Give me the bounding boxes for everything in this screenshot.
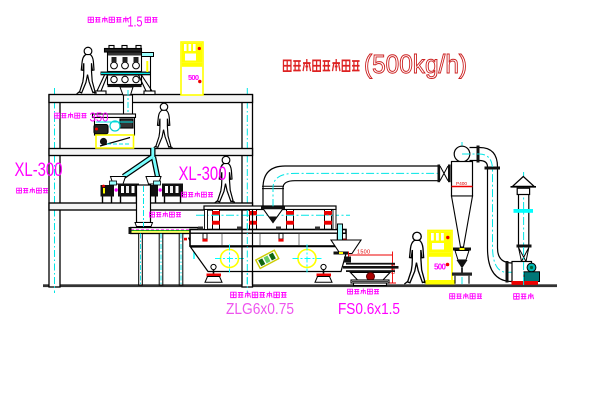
svg-text:XL-300: XL-300 xyxy=(179,164,227,185)
svg-text:500: 500 xyxy=(188,73,199,82)
svg-text:FS0.6x1.5: FS0.6x1.5 xyxy=(338,301,400,318)
svg-text:(500kg/h): (500kg/h) xyxy=(364,49,467,79)
svg-text:500: 500 xyxy=(434,263,447,272)
svg-text:1500: 1500 xyxy=(357,250,370,256)
svg-text:XL-300: XL-300 xyxy=(15,160,63,181)
svg-text:350: 350 xyxy=(90,110,109,125)
svg-text:ZLG6x0.75: ZLG6x0.75 xyxy=(226,301,294,318)
svg-text:1.5: 1.5 xyxy=(128,14,143,31)
svg-text:P400: P400 xyxy=(456,181,467,187)
